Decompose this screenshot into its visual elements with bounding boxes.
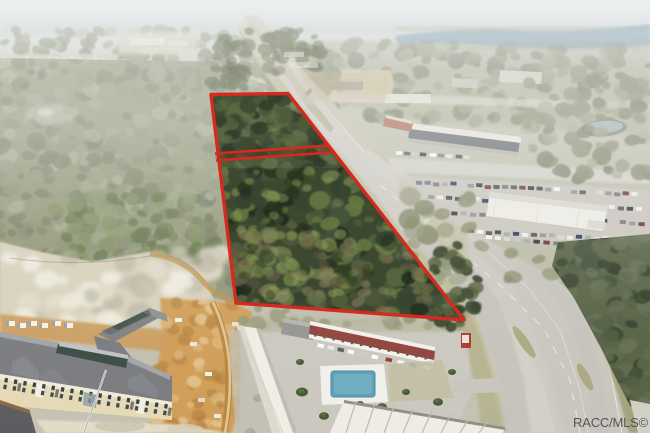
svg-text:RACC/MLS©: RACC/MLS© (573, 415, 649, 430)
